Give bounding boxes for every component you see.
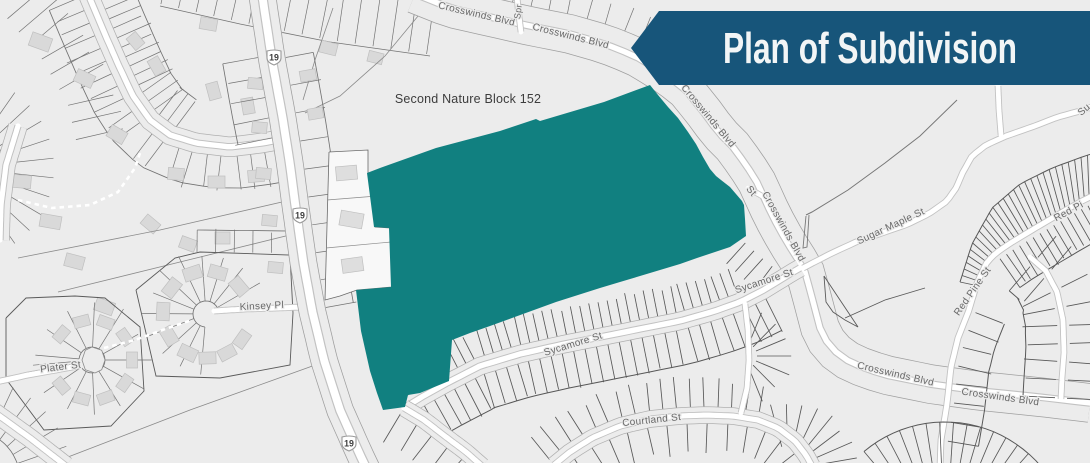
svg-text:19: 19 (344, 438, 354, 448)
svg-text:Second Nature Block 152: Second Nature Block 152 (395, 92, 541, 106)
svg-text:Plan of Subdivision: Plan of Subdivision (723, 24, 1017, 73)
svg-text:Spr: Spr (512, 4, 524, 20)
svg-text:Kinsey Pl: Kinsey Pl (239, 300, 284, 313)
svg-text:19: 19 (295, 210, 305, 220)
svg-text:19: 19 (269, 52, 279, 62)
